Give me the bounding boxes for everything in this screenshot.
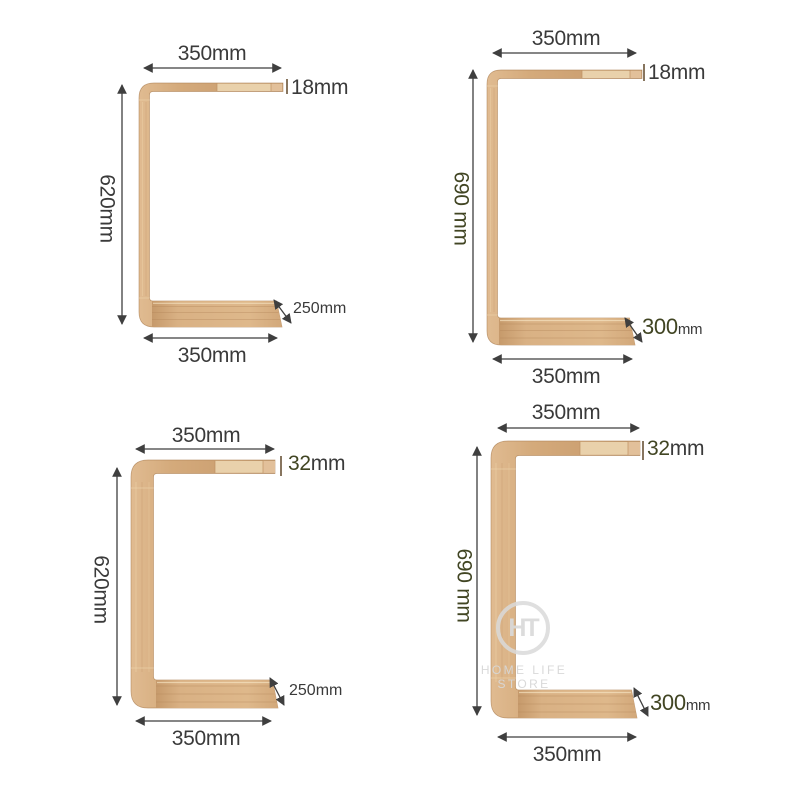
table-illustration-1 (139, 83, 283, 327)
table3-top-width-label: 350mm (146, 424, 266, 447)
table1-height-label: 620mm (95, 162, 118, 256)
table4-depth-label: 300mm (650, 691, 710, 715)
store-logo-monogram: HT (508, 614, 537, 643)
table-3-body (131, 460, 278, 708)
table3-height-label: 620mm (89, 543, 112, 637)
table4-top-width-label: 350mm (506, 401, 626, 424)
dimension-arrows-2 (473, 53, 644, 359)
table1-thickness-label: 18mm (291, 76, 348, 99)
table2-thickness-label: 18mm (648, 61, 705, 84)
table-illustration-3 (131, 460, 278, 708)
table1-depth-label: 250mm (293, 300, 346, 318)
table2-top-width-label: 350mm (506, 27, 626, 50)
store-logo-icon: HT (496, 601, 550, 655)
table1-bottom-width-label: 350mm (152, 344, 272, 367)
store-name-watermark: HOME LIFE STORE (453, 663, 595, 691)
table2-height-label: 690 mm (449, 162, 472, 256)
table4-height-label: 690 mm (452, 539, 475, 633)
table4-bottom-width-label: 350mm (507, 743, 627, 766)
table1-top-width-label: 350mm (152, 42, 272, 65)
table-illustration-2 (487, 70, 642, 345)
table3-thickness-label: 32mm (288, 452, 345, 475)
table2-depth-label: 300mm (642, 315, 702, 339)
table4-thickness-label: 32mm (647, 437, 704, 460)
table3-depth-label: 250mm (289, 682, 342, 700)
table-2-body (487, 70, 642, 345)
diagram-canvas (0, 0, 800, 800)
table-1-body (139, 83, 283, 327)
table3-bottom-width-label: 350mm (146, 727, 266, 750)
table2-bottom-width-label: 350mm (506, 365, 626, 388)
product-dimension-diagram: 350mm 18mm 620mm 250mm 350mm 350mm 18mm … (0, 0, 800, 800)
